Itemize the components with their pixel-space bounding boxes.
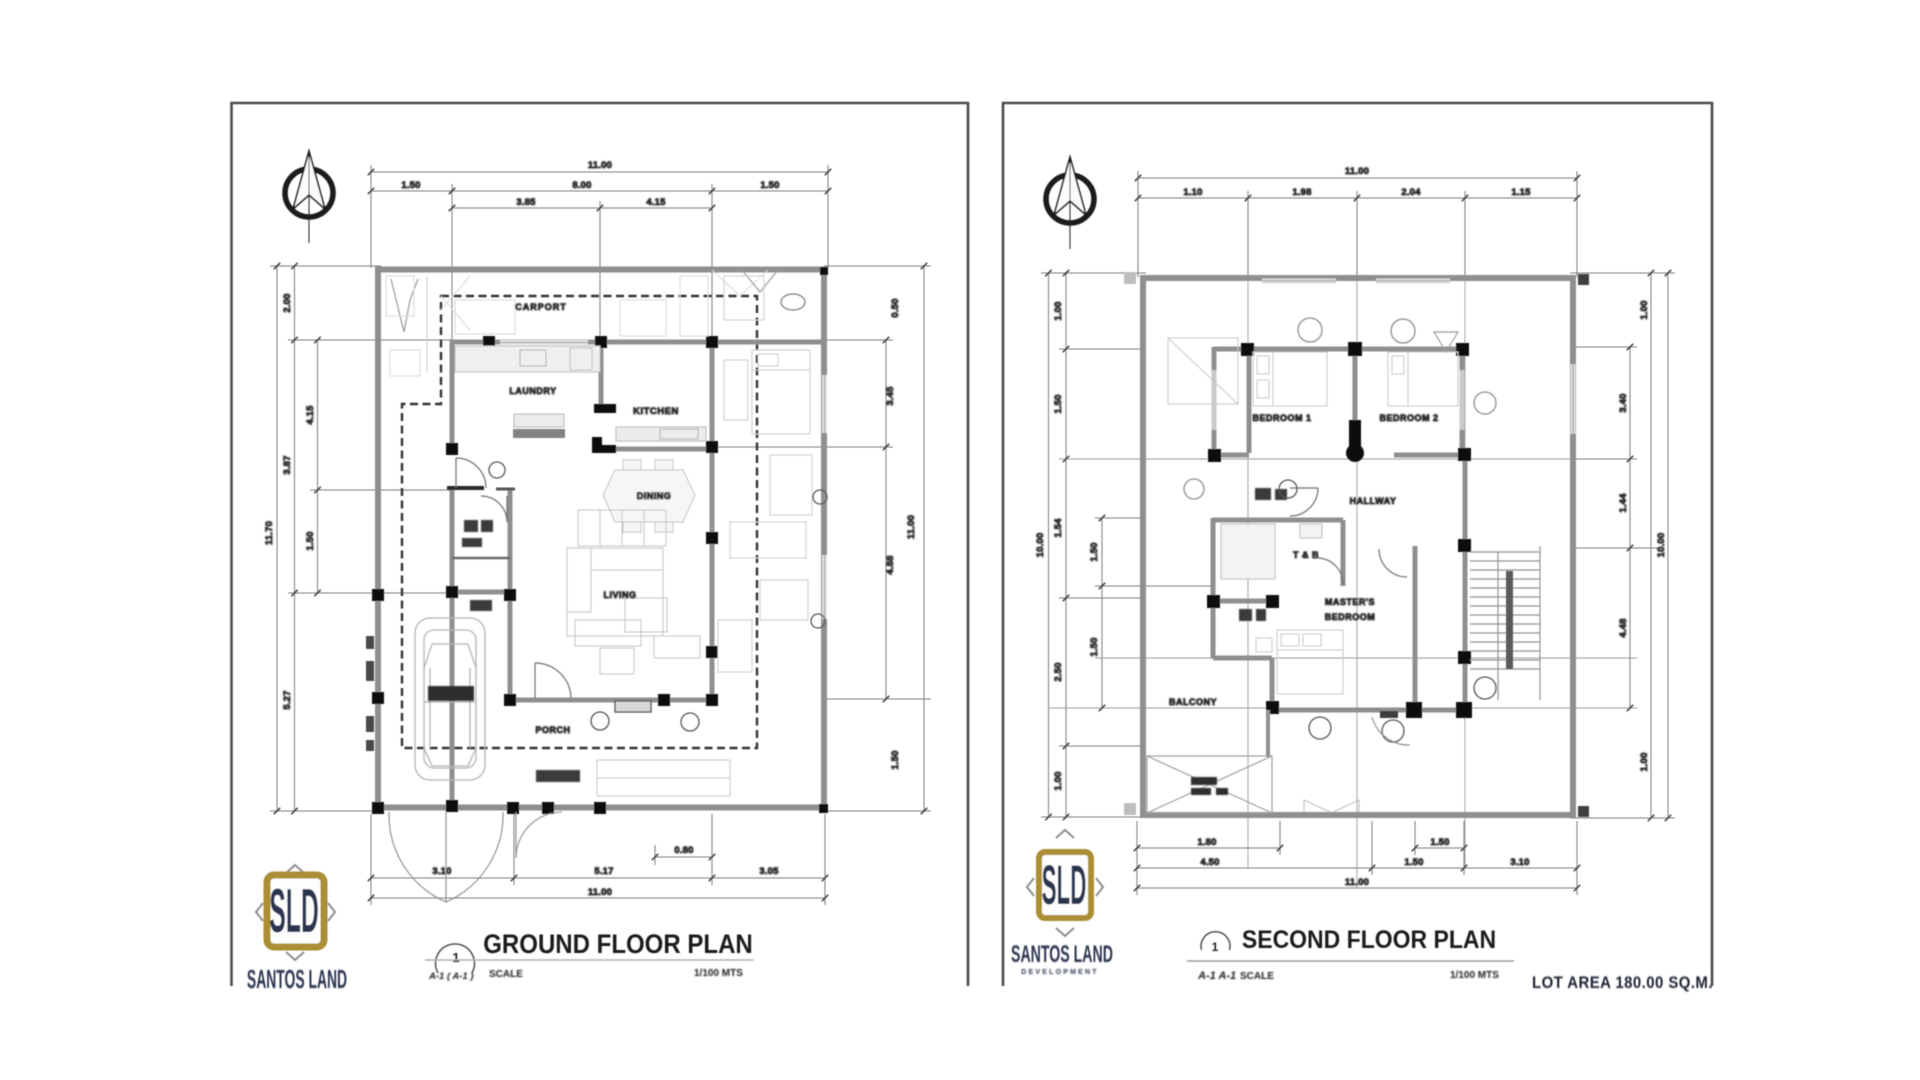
- svg-text:A-1 ( A-1 ): A-1 ( A-1 ): [428, 971, 474, 982]
- svg-text:SCALE: SCALE: [1240, 971, 1274, 982]
- svg-text:5.17: 5.17: [594, 866, 613, 877]
- svg-text:11.00: 11.00: [588, 160, 612, 171]
- svg-text:T & B: T & B: [1293, 550, 1319, 560]
- svg-text:1.80: 1.80: [1197, 837, 1216, 848]
- svg-text:HALLWAY: HALLWAY: [1350, 496, 1397, 506]
- svg-text:GROUND FLOOR PLAN: GROUND FLOOR PLAN: [483, 930, 753, 960]
- svg-text:BALCONY: BALCONY: [1169, 697, 1217, 707]
- svg-text:1.50: 1.50: [1053, 394, 1064, 413]
- svg-text:BEDROOM 1: BEDROOM 1: [1252, 413, 1311, 423]
- svg-text:CARPORT: CARPORT: [515, 302, 567, 312]
- svg-text:1.15: 1.15: [1511, 187, 1531, 198]
- svg-text:2.50: 2.50: [1053, 662, 1064, 681]
- svg-text:1: 1: [1212, 940, 1219, 954]
- svg-text:1.00: 1.00: [1053, 301, 1064, 320]
- svg-text:1.50: 1.50: [1089, 637, 1100, 656]
- svg-text:A-1 A-1: A-1 A-1: [1197, 970, 1236, 982]
- svg-text:10.00: 10.00: [1035, 533, 1046, 558]
- svg-text:11.00: 11.00: [906, 515, 917, 539]
- svg-text:1.00: 1.00: [1639, 752, 1650, 771]
- svg-text:DEVELOPMENT: DEVELOPMENT: [1021, 969, 1098, 976]
- svg-text:1.54: 1.54: [1053, 518, 1064, 538]
- svg-text:SCALE: SCALE: [489, 969, 523, 980]
- svg-text:1.50: 1.50: [401, 180, 420, 191]
- svg-text:11.00: 11.00: [588, 887, 612, 898]
- svg-text:11.70: 11.70: [264, 521, 275, 545]
- svg-text:5.27: 5.27: [282, 690, 293, 709]
- svg-text:SANTOS LAND: SANTOS LAND: [1011, 941, 1113, 968]
- svg-text:3.05: 3.05: [759, 866, 779, 877]
- svg-text:KITCHEN: KITCHEN: [633, 406, 679, 417]
- svg-text:1.44: 1.44: [1618, 493, 1629, 513]
- svg-text:1.50: 1.50: [890, 750, 901, 769]
- svg-text:1.50: 1.50: [1430, 837, 1449, 848]
- svg-text:LAUNDRY: LAUNDRY: [509, 386, 556, 396]
- svg-text:1.00: 1.00: [1053, 771, 1064, 790]
- svg-text:4.50: 4.50: [1200, 857, 1219, 868]
- svg-text:2.04: 2.04: [1401, 187, 1421, 198]
- svg-text:1.50: 1.50: [760, 180, 779, 191]
- svg-text:PORCH: PORCH: [535, 725, 570, 735]
- svg-text:LOT AREA 180.00 SQ.M.: LOT AREA 180.00 SQ.M.: [1532, 974, 1713, 992]
- svg-text:2.00: 2.00: [282, 293, 293, 312]
- svg-text:0.50: 0.50: [890, 298, 901, 317]
- svg-text:1.50: 1.50: [1089, 542, 1100, 561]
- svg-text:11.00: 11.00: [1345, 166, 1369, 177]
- svg-text:3.85: 3.85: [516, 197, 536, 208]
- svg-text:SLD: SLD: [269, 877, 319, 947]
- svg-text:MASTER'S: MASTER'S: [1325, 597, 1375, 607]
- svg-text:3.10: 3.10: [432, 866, 451, 877]
- svg-text:1: 1: [452, 950, 459, 965]
- svg-text:3.87: 3.87: [282, 455, 293, 474]
- svg-text:4.15: 4.15: [646, 197, 666, 208]
- svg-text:SECOND FLOOR PLAN: SECOND FLOOR PLAN: [1242, 926, 1496, 954]
- svg-text:4.15: 4.15: [305, 405, 316, 425]
- svg-text:0.80: 0.80: [674, 845, 693, 856]
- svg-text:3.10: 3.10: [1510, 857, 1529, 868]
- svg-text:BEDROOM 2: BEDROOM 2: [1379, 413, 1438, 423]
- svg-text:3.40: 3.40: [1618, 393, 1629, 412]
- svg-text:DINING: DINING: [637, 491, 672, 501]
- svg-text:8.00: 8.00: [572, 180, 591, 191]
- svg-text:1.50: 1.50: [1404, 857, 1423, 868]
- svg-text:3.45: 3.45: [885, 386, 896, 406]
- svg-text:1.50: 1.50: [305, 531, 316, 550]
- svg-text:BEDROOM: BEDROOM: [1325, 612, 1376, 622]
- svg-text:1.10: 1.10: [1183, 187, 1202, 198]
- svg-text:1.00: 1.00: [1639, 300, 1650, 319]
- svg-text:SANTOS LAND: SANTOS LAND: [247, 966, 347, 995]
- svg-text:10.00: 10.00: [1656, 533, 1667, 558]
- svg-text:1.98: 1.98: [1292, 187, 1311, 198]
- svg-text:4.48: 4.48: [1618, 618, 1629, 637]
- svg-text:1/100 MTS: 1/100 MTS: [1450, 970, 1499, 981]
- svg-text:LIVING: LIVING: [603, 590, 636, 600]
- svg-text:11.00: 11.00: [1345, 877, 1369, 888]
- svg-text:SLD: SLD: [1042, 854, 1087, 917]
- svg-text:4.88: 4.88: [885, 555, 896, 574]
- svg-text:1/100 MTS: 1/100 MTS: [694, 968, 743, 979]
